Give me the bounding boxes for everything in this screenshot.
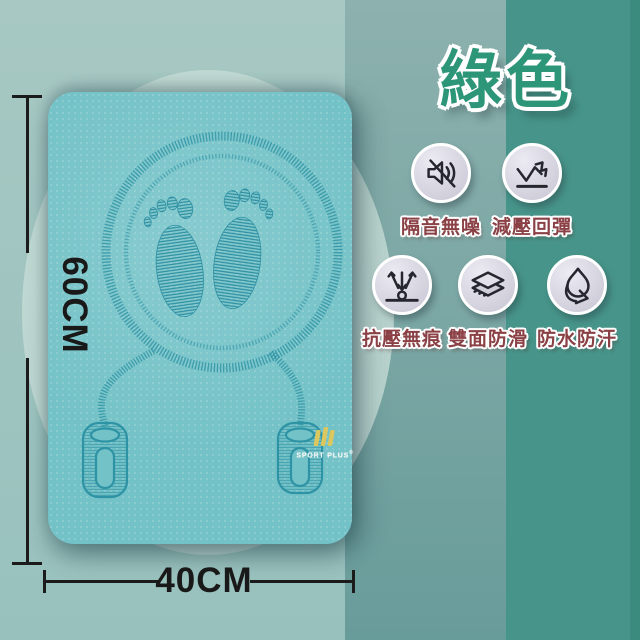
width-dimension-tick-left (43, 570, 46, 593)
feature-label: 減壓回彈 (492, 212, 572, 239)
feature-badge-pressure: 抗壓無痕 (354, 255, 450, 351)
registered-mark: ® (349, 450, 353, 456)
brand-name: SPORT PLUS® (294, 450, 356, 459)
badge-circle (547, 255, 607, 315)
feature-label: 防水防汗 (537, 324, 617, 351)
feature-label: 隔音無噪 (401, 212, 481, 239)
badge-circle (372, 255, 432, 315)
color-title: 綠色 (418, 50, 594, 113)
height-dimension-tick-bottom (12, 562, 42, 565)
right-footprint-icon (208, 186, 276, 312)
width-dimension-line (250, 580, 354, 583)
double-layer-icon (467, 264, 509, 306)
height-dimension-tick-top (12, 95, 42, 98)
feature-badge-waterproof: 防水防汗 (529, 255, 625, 351)
waterproof-drop-icon (556, 264, 598, 306)
badge-circle (411, 143, 471, 203)
width-dimension-tick-right (352, 570, 355, 593)
feature-badge-soundproof: 隔音無噪 (393, 143, 489, 239)
rope-cord-left (101, 350, 155, 426)
product-banner: SPORT PLUS® 綠色 隔音無噪 (0, 0, 640, 640)
rope-handle-left (83, 423, 127, 497)
feature-badge-rebound: 減壓回彈 (484, 143, 580, 239)
feature-badge-antislip: 雙面防滑 (440, 255, 536, 351)
feature-label: 抗壓無痕 (362, 324, 442, 351)
rope-cord-right (270, 352, 302, 425)
feature-label: 雙面防滑 (448, 324, 528, 351)
height-dimension-line (26, 97, 29, 253)
width-dimension-label: 40CM (155, 561, 252, 601)
rebound-arrow-icon (511, 152, 553, 194)
brand-logo: SPORT PLUS® (294, 426, 356, 459)
height-dimension-line (26, 358, 29, 564)
width-dimension-line (44, 580, 158, 583)
height-dimension-label: 60CM (54, 256, 94, 353)
left-footprint-icon (141, 194, 209, 320)
badge-circle (458, 255, 518, 315)
muted-speaker-icon (420, 152, 462, 194)
badge-circle (502, 143, 562, 203)
brand-logo-icon (294, 426, 356, 450)
pressure-resist-icon (381, 264, 423, 306)
